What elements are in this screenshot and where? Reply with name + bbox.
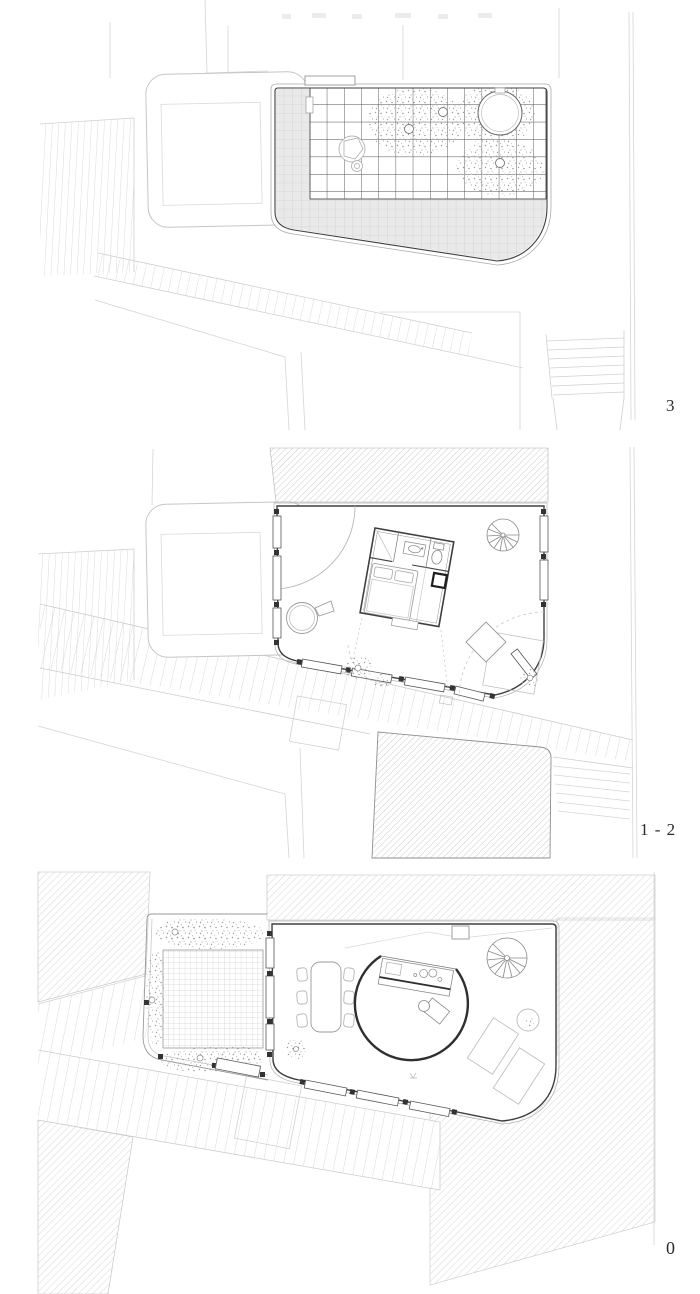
- roof-plot: [271, 76, 551, 265]
- roof-small-box: [306, 97, 313, 113]
- dining-table: [311, 962, 341, 1032]
- trellis-grid: [163, 950, 263, 1048]
- stair-skylight-opening: [478, 91, 522, 135]
- levels-1-2-plan-drawing: [0, 430, 700, 860]
- roof-plan-label: 3: [666, 396, 676, 416]
- outdoor-stairs: [546, 330, 624, 430]
- curved-kitchen-island: [355, 956, 468, 1060]
- dining-area: [296, 962, 354, 1032]
- skylight-tab: [495, 88, 505, 93]
- potted-plant: [525, 1017, 537, 1027]
- ground-floor-plan-label: 0: [666, 1238, 676, 1259]
- roof-plan-drawing: [0, 0, 700, 430]
- garden-courtyard: [143, 914, 268, 1080]
- neighbor-hatch-top: [270, 448, 548, 502]
- context-faint-marks: [282, 13, 492, 19]
- roof-top-ledge: [305, 76, 355, 85]
- spiral-stair: [487, 938, 527, 978]
- fireplace-box: [432, 573, 447, 588]
- wall-cabinet: [452, 926, 469, 939]
- floor-plant: [285, 1039, 307, 1059]
- street-stairs-left: [40, 118, 134, 276]
- ground-floor-plan-drawing: [0, 860, 700, 1294]
- street-paving: [94, 253, 472, 356]
- spiral-stair: [487, 519, 519, 551]
- drawing-sheet: 3 1 - 2 0: [0, 0, 700, 1294]
- levels-1-2-plan: [0, 430, 700, 860]
- roof-plan: [0, 0, 700, 430]
- ground-floor-plan: [0, 860, 700, 1294]
- house-ground-floor: [266, 921, 559, 1124]
- levels-1-2-plan-label: 1 - 2: [640, 820, 676, 840]
- bed: [364, 563, 418, 620]
